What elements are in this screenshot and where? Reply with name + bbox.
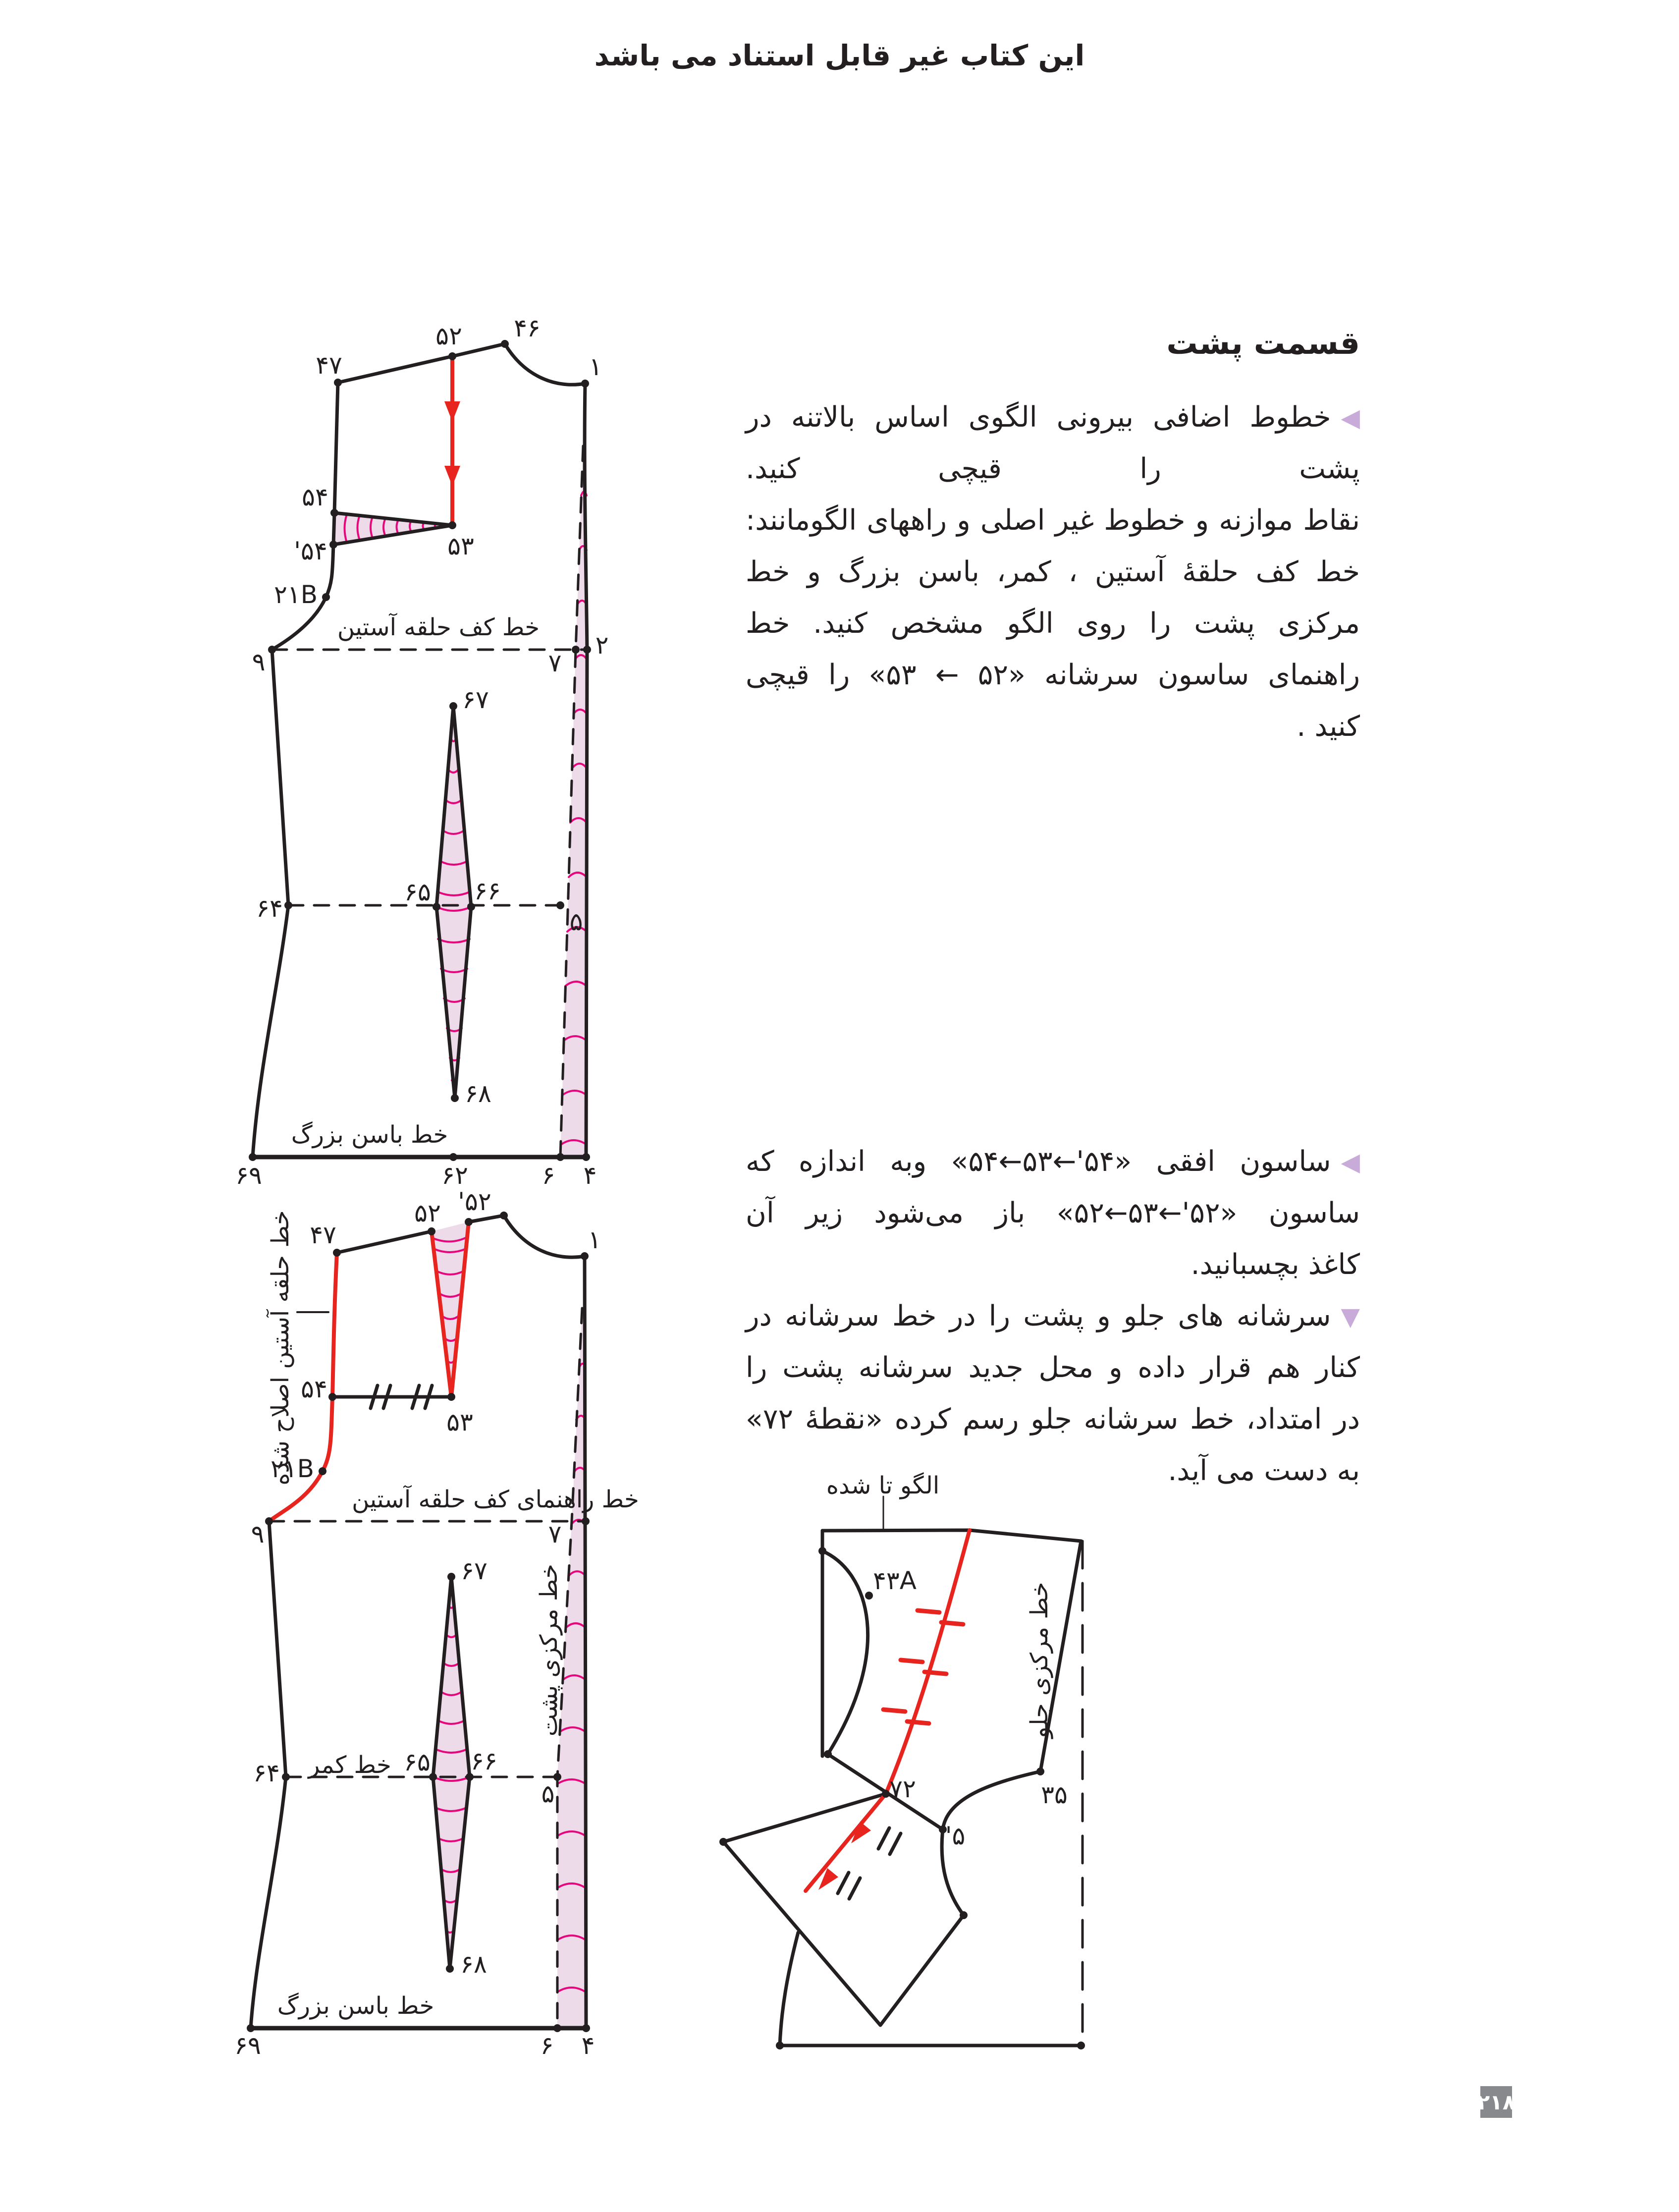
paragraph-line: پشت را قیچی کنید. [746, 443, 1360, 495]
diagram-text-label: خط مرکزی پشت [535, 1564, 563, 1736]
point-label: ۹ [252, 648, 266, 676]
point-label: ۶۸ [465, 1079, 491, 1108]
point-label: ۶۴ [256, 894, 283, 923]
point-label: ۱ [588, 1225, 601, 1254]
diagram-text-label: خط باسن بزرگ [277, 1992, 434, 2020]
point-label: ۵ [542, 1779, 555, 1808]
line-text: کنید . [1297, 710, 1360, 743]
point-label: ۶۴ [253, 1759, 280, 1787]
point-label: ۶۹ [234, 2031, 261, 2060]
point-label: ۴۷ [316, 351, 342, 380]
point-label: ۴۷ [310, 1220, 336, 1249]
point-label: ۶۶ [471, 1747, 497, 1775]
paragraph-line: کنید . [746, 701, 1360, 752]
bullet-triangle-icon: ▼ [1341, 1291, 1360, 1342]
paragraph-line: نقاط موازنه و خطوط غیر اصلی و راههای الگ… [746, 495, 1360, 546]
line-text: کنار هم قرار داده و محل جدید سرشانه پشت … [746, 1351, 1360, 1384]
bullet-triangle-icon: ◀ [1341, 392, 1360, 443]
point-label: ۴ [584, 1161, 597, 1190]
paragraph-line: ◀خطوط اضافی بیرونی الگوی اساس بالاتنه در [746, 391, 1360, 443]
page-number-badge: ۲۱۸ [1480, 2086, 1512, 2118]
instructions-block-1: قسمت پشت ◀خطوط اضافی بیرونی الگوی اساس ب… [746, 325, 1360, 752]
point-label: ۶۷ [461, 1556, 487, 1585]
point-label: ۷ [548, 1520, 562, 1548]
point-label: ۵۳ [447, 532, 474, 560]
line-text: ساسون افقی «۵۴'←۵۳←۵۴» وبه اندازه که [746, 1145, 1331, 1178]
line-text: ساسون «۵۲'←۵۳←۵۲» باز می‌شود زیر آن [746, 1197, 1360, 1229]
point-label: ۷۲ [889, 1774, 916, 1803]
line-text: پشت را قیچی کنید. [746, 452, 1360, 485]
line-text: مرکزی پشت را روی الگو مشخص کنید. خط [746, 607, 1360, 640]
point-label: ۶۲ [441, 1161, 468, 1190]
line-text: راهنمای ساسون سرشانه «۵۲ ← ۵۳» را قیچی [746, 659, 1360, 691]
line-text: در امتداد، خط سرشانه جلو رسم کرده «نقطهٔ… [746, 1403, 1360, 1436]
point-label: ۶۶ [474, 877, 501, 905]
page-number: ۲۱۸ [1477, 2090, 1516, 2114]
point-label: ۹ [251, 1520, 265, 1548]
diagram-text-label: خط راهنمای کف حلقه آستین [352, 1486, 639, 1513]
line-text: کاغذ بچسبانید. [1191, 1248, 1360, 1281]
point-label: ۵۴' [294, 537, 327, 565]
book-page: { "page": { "number_fa": "۲۱۸" }, "color… [0, 0, 1679, 2212]
point-label: ۷ [548, 649, 562, 677]
point-label: ۶۹ [235, 1161, 262, 1190]
paragraph-line: ساسون «۵۲'←۵۳←۵۲» باز می‌شود زیر آن [746, 1187, 1360, 1239]
point-label: ۶۵ [404, 1748, 431, 1776]
point-label: ۴۶ [514, 314, 541, 342]
point-label: ۵۲ [414, 1199, 441, 1227]
point-label: ۶ [541, 2031, 554, 2060]
paragraph-line: در امتداد، خط سرشانه جلو رسم کرده «نقطهٔ… [746, 1393, 1360, 1445]
point-label: ۴ [582, 2031, 595, 2060]
diagram-text-label: خط کمر [308, 1751, 391, 1779]
point-label: ۵۴ [301, 1375, 327, 1403]
point-label: ۵۴ [302, 483, 328, 511]
instructions-block-2: ◀ساسون افقی «۵۴'←۵۳←۵۴» وبه اندازه که سا… [746, 1136, 1360, 1496]
line-text: نقاط موازنه و خطوط غیر اصلی و راههای الگ… [746, 504, 1360, 537]
paragraph-line: ▼سرشانه های جلو و پشت را در خط سرشانه در [746, 1290, 1360, 1342]
paragraph-line: راهنمای ساسون سرشانه «۵۲ ← ۵۳» را قیچی [746, 649, 1360, 701]
paragraph-line: ◀ساسون افقی «۵۴'←۵۳←۵۴» وبه اندازه که [746, 1136, 1360, 1187]
section-title: قسمت پشت [746, 325, 1360, 391]
line-text: به دست می آید. [1168, 1454, 1360, 1487]
point-label: ۵' [945, 1822, 966, 1850]
diagram-text-label: خط باسن بزرگ [291, 1121, 448, 1149]
point-label: ۵ [570, 907, 583, 936]
point-label: ۱ [589, 352, 602, 381]
point-label: ۵۲' [458, 1187, 491, 1216]
paragraph-line: مرکزی پشت را روی الگو مشخص کنید. خط [746, 598, 1360, 649]
point-label: ۲ [596, 631, 609, 660]
point-label: ۵۳ [446, 1408, 473, 1437]
diagram-text-label: خط مرکزی جلو [1026, 1582, 1053, 1738]
paragraph-line: خط کف حلقهٔ آستین ، کمر، باسن بزرگ و خط [746, 546, 1360, 598]
line-text: سرشانه های جلو و پشت را در خط سرشانه در [746, 1300, 1331, 1332]
point-label: ۶ [542, 1161, 555, 1190]
point-label: ۶۵ [404, 878, 431, 906]
paragraph-line: کنار هم قرار داده و محل جدید سرشانه پشت … [746, 1342, 1360, 1393]
diagram-text-label: خط کف حلقه آستین [337, 613, 540, 641]
paragraph-line: به دست می آید. [746, 1445, 1360, 1496]
point-label: ۴۳A [873, 1566, 917, 1595]
line-text: خطوط اضافی بیرونی الگوی اساس بالاتنه در [746, 401, 1331, 434]
point-label: ۲۱B [274, 580, 318, 609]
point-label: ۳۵ [1041, 1780, 1068, 1809]
point-label: ۶۸ [460, 1950, 487, 1979]
diagram-text-label: خط حلقه آستین اصلاح شده [267, 1210, 294, 1485]
point-label: ۶۷ [462, 685, 489, 714]
point-label: ۵۲ [435, 322, 462, 350]
line-text: خط کف حلقهٔ آستین ، کمر، باسن بزرگ و خط [746, 555, 1360, 588]
bullet-triangle-icon: ◀ [1341, 1136, 1360, 1188]
paragraph-line: کاغذ بچسبانید. [746, 1239, 1360, 1290]
